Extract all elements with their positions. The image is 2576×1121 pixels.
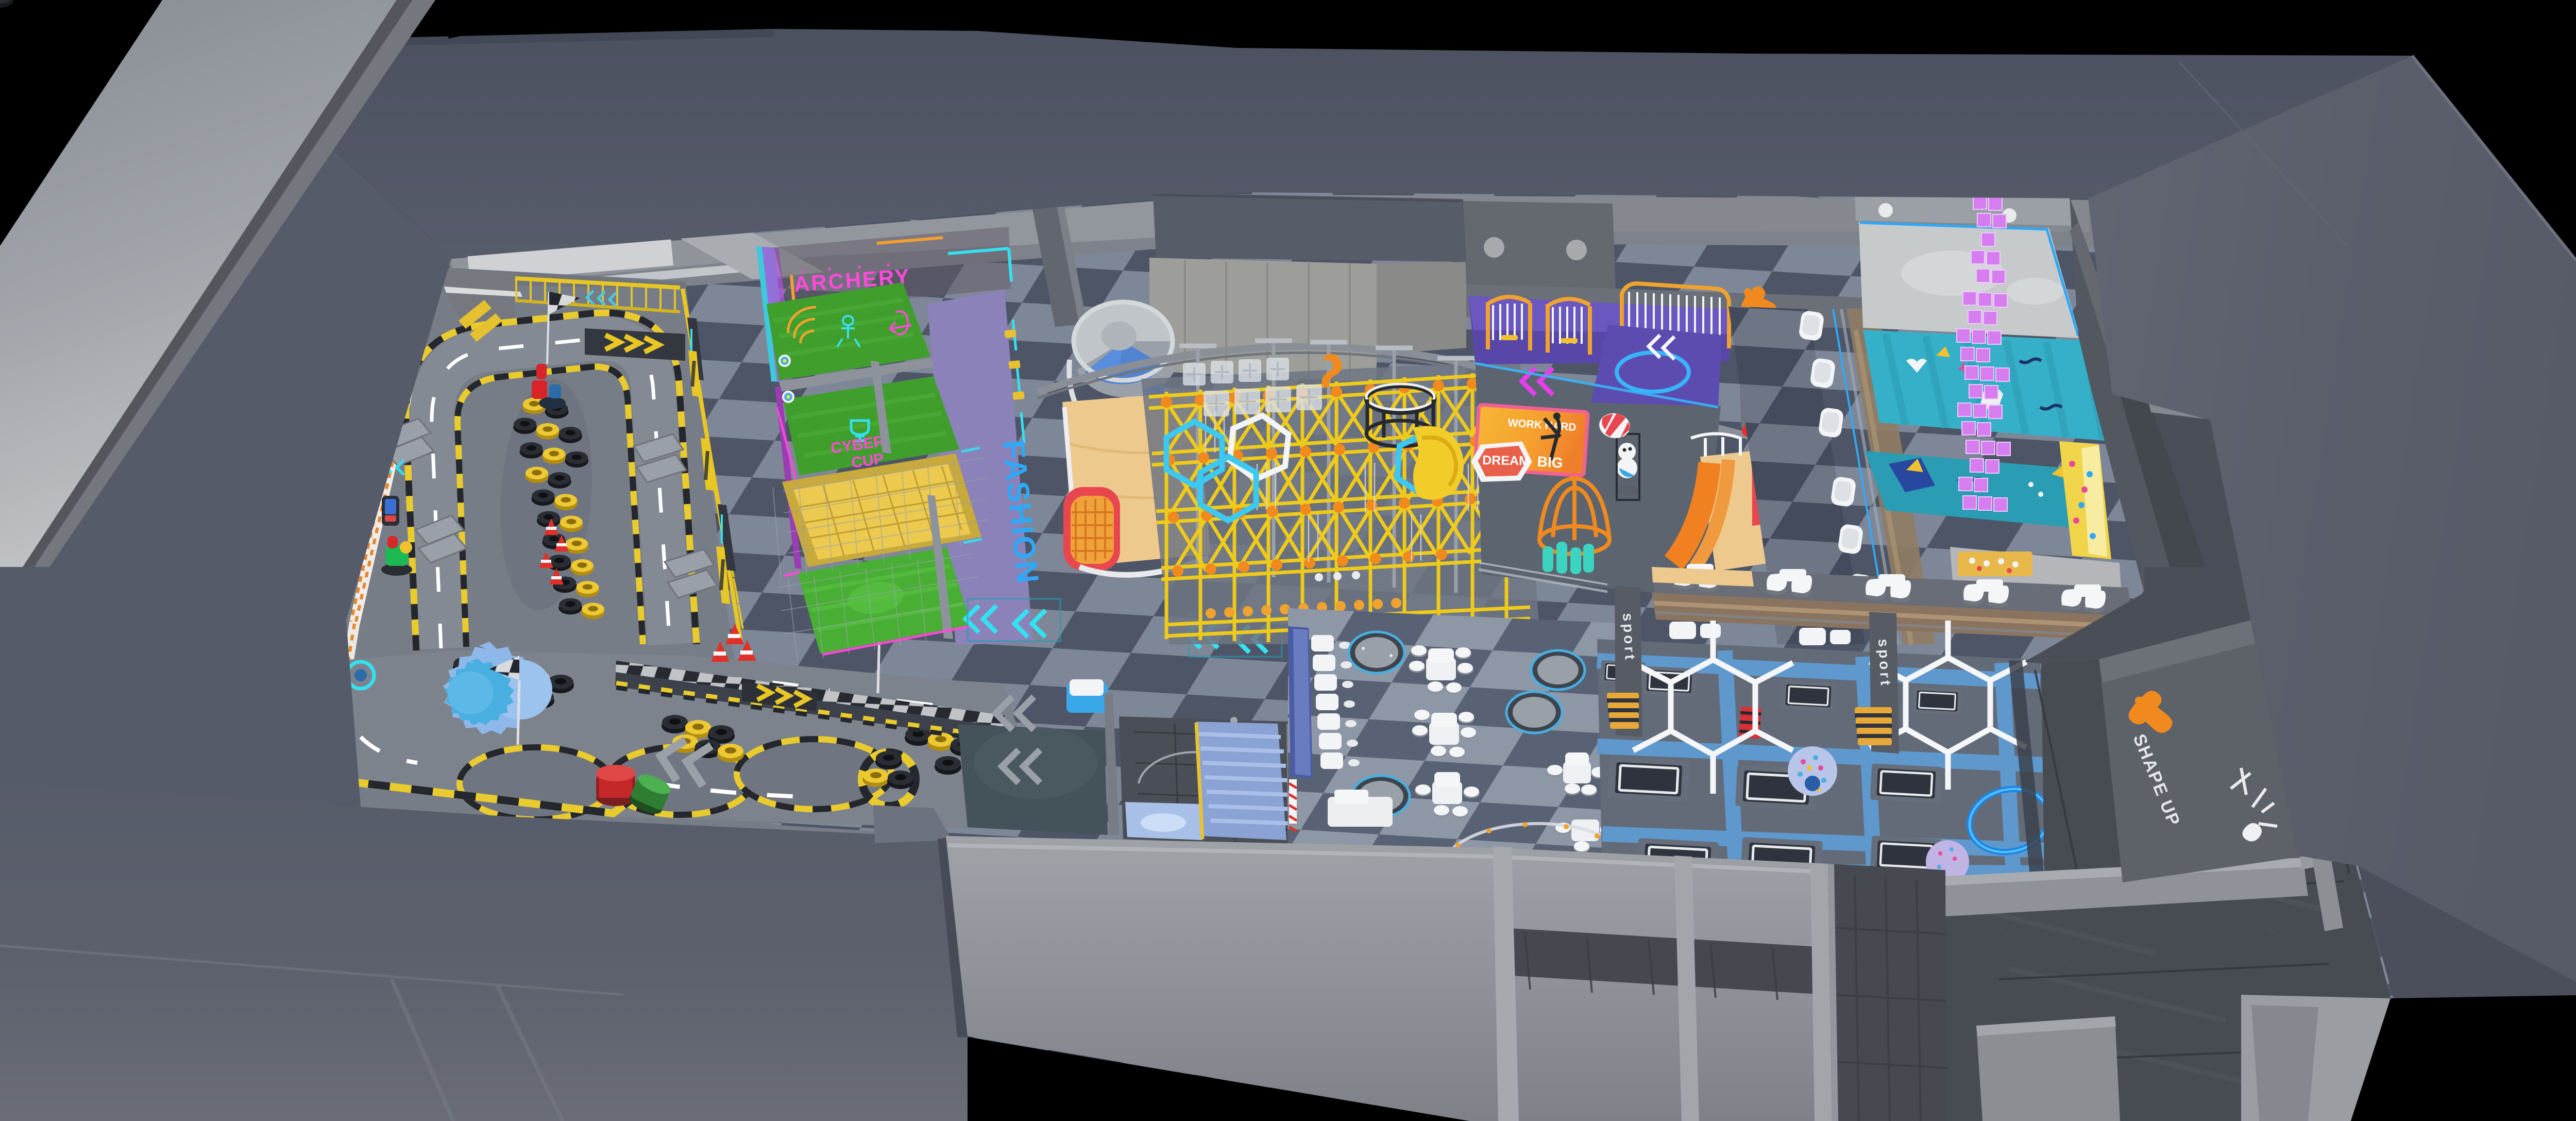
svg-text:sport: sport xyxy=(1875,639,1894,688)
svg-text:BIG: BIG xyxy=(1537,454,1564,471)
svg-text:sport: sport xyxy=(1620,613,1638,662)
svg-text:DREAM: DREAM xyxy=(1482,453,1530,469)
